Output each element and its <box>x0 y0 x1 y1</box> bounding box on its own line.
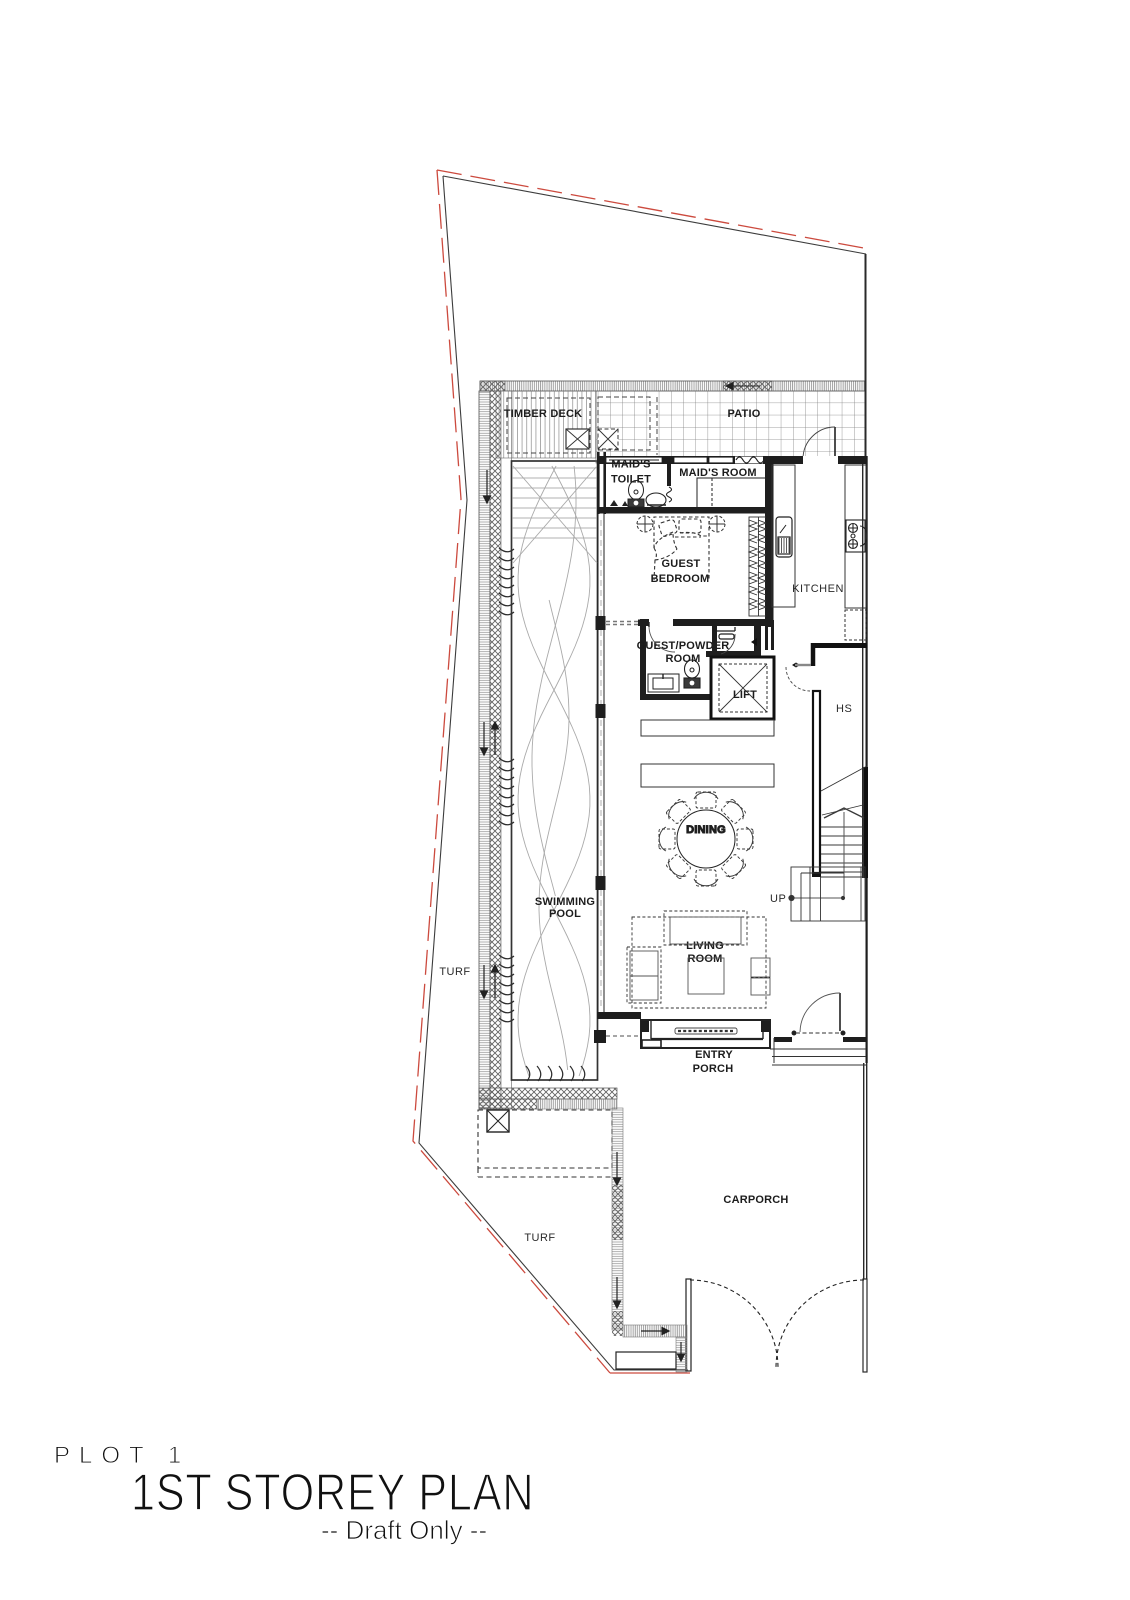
svg-text:TURF: TURF <box>524 1232 555 1244</box>
svg-text:ROOM: ROOM <box>687 953 722 965</box>
svg-text:BEDROOM: BEDROOM <box>651 573 710 585</box>
svg-text:SWIMMING: SWIMMING <box>535 896 595 908</box>
svg-text:CARPORCH: CARPORCH <box>723 1194 788 1206</box>
svg-text:MAID'S: MAID'S <box>611 459 650 471</box>
svg-text:TOILET: TOILET <box>611 474 651 486</box>
svg-text:DINING: DINING <box>686 824 726 836</box>
svg-text:PATIO: PATIO <box>728 408 761 420</box>
svg-text:LIFT: LIFT <box>733 689 757 701</box>
svg-text:LIVING: LIVING <box>686 940 724 952</box>
svg-text:UP: UP <box>770 893 786 905</box>
svg-text:1ST STOREY PLAN: 1ST STOREY PLAN <box>131 1464 534 1522</box>
svg-text:ENTRY: ENTRY <box>695 1049 733 1061</box>
svg-text:PORCH: PORCH <box>693 1063 734 1075</box>
svg-text:GUEST: GUEST <box>662 558 701 570</box>
svg-text:MAID'S ROOM: MAID'S ROOM <box>679 467 757 479</box>
svg-text:ROOM: ROOM <box>665 653 700 665</box>
svg-text:-- Draft Only --: -- Draft Only -- <box>321 1515 487 1545</box>
svg-text:HS: HS <box>836 703 852 715</box>
svg-text:TURF: TURF <box>439 966 470 978</box>
svg-text:KITCHEN: KITCHEN <box>792 583 844 595</box>
svg-text:POOL: POOL <box>549 908 581 920</box>
svg-text:TIMBER DECK: TIMBER DECK <box>504 408 583 420</box>
